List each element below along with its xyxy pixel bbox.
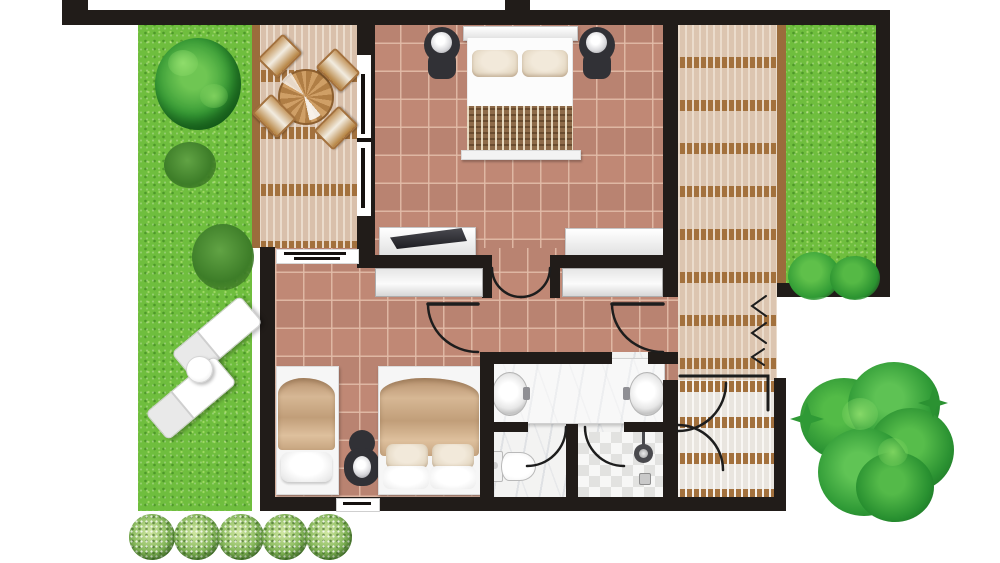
step-chevron-3 [752, 349, 764, 365]
floor-plan-canvas [0, 0, 1000, 563]
bathroom-door-arc [612, 304, 663, 352]
right-garden-bush-2 [830, 256, 880, 300]
step-chevron-2 [752, 323, 766, 343]
se-tree-highlight-2 [878, 438, 908, 466]
se-tree-highlight-1 [842, 398, 878, 430]
hedge-bush-4 [262, 514, 308, 560]
garden-shrub-2 [192, 224, 254, 290]
double-door-right-arc [521, 268, 550, 297]
double-door-left-arc [492, 268, 521, 297]
hedge-bush-3 [218, 514, 264, 560]
garden-shrub-1 [164, 142, 216, 188]
hedge-bush-5 [306, 514, 352, 560]
garden-tree-large-highlight2 [200, 84, 228, 108]
hedge-bush-1 [129, 514, 175, 560]
shower-door-arc [585, 427, 624, 466]
garden-tree-large [155, 38, 241, 130]
garden-tree-large-highlight [168, 50, 198, 76]
wc-door-arc [527, 427, 566, 466]
deck-door-arc-upper [678, 383, 726, 431]
bedroom2-door-arc [428, 304, 478, 352]
lounger-side-table [186, 356, 213, 383]
hedge-bush-2 [174, 514, 220, 560]
step-chevron-1 [752, 296, 766, 316]
